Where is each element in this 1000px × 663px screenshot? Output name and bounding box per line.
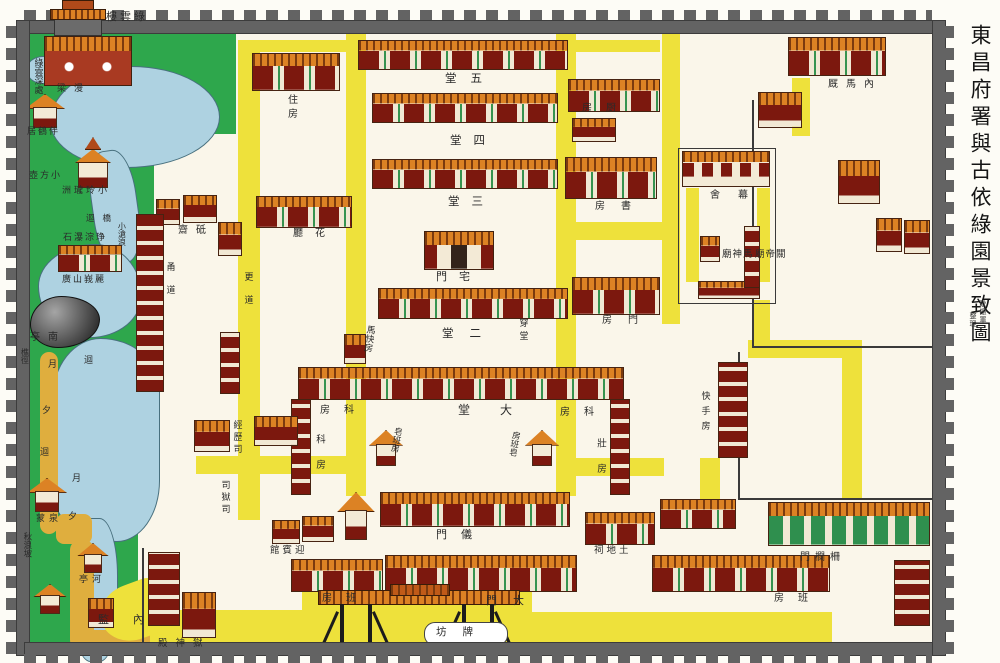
connector-west <box>196 456 346 474</box>
connector-east-3 <box>700 458 720 504</box>
tower-roof-lower <box>50 9 106 20</box>
wall-right-crenellation <box>944 20 954 654</box>
tower-roof-upper <box>62 0 94 10</box>
tower-base <box>54 19 102 36</box>
wall-top-crenellation <box>24 10 932 20</box>
pond-small <box>26 56 60 84</box>
corner-gate-tower <box>48 0 104 36</box>
wall-top <box>24 20 934 34</box>
connector-east-2 <box>556 458 664 476</box>
corridor-axis-east <box>556 34 576 496</box>
wall-left-crenellation <box>6 20 16 654</box>
se-court-wall-south <box>738 498 932 500</box>
corridor-axis-west <box>346 34 366 496</box>
corridor-west-main <box>238 40 260 520</box>
credit-name: 耿振軍 <box>978 300 988 324</box>
corridor-stable <box>792 78 810 136</box>
wall-bottom-crenellation <box>24 654 932 663</box>
corridor-top-east <box>560 40 660 52</box>
credit-role: 整理 <box>968 312 978 328</box>
garden-path-west <box>40 352 58 534</box>
corridor-se-vert <box>842 356 862 498</box>
title-panel: 東昌府署與古依綠園景致圖 耿振軍 整理 <box>954 0 1000 663</box>
corridor-top-west <box>240 40 348 52</box>
mushe-compound-wall <box>678 148 776 304</box>
ne-court-wall-west <box>752 100 754 348</box>
pond-middle <box>38 244 142 338</box>
wall-left <box>16 20 30 656</box>
paifang-roof-cap <box>390 584 450 596</box>
map-canvas: 樓雲綠綠雲深處梁漫居鶴伴壺方小洲瓏玲小迴橋小滄浪石瀑淙琤廣山峩麗亭南樵徑迴月夕迴… <box>0 0 954 663</box>
ne-court-wall-south <box>752 346 932 348</box>
se-court-wall-west <box>738 352 740 498</box>
pond-south <box>52 338 160 542</box>
connector-east-1 <box>576 222 680 240</box>
prison-wall <box>142 548 144 642</box>
